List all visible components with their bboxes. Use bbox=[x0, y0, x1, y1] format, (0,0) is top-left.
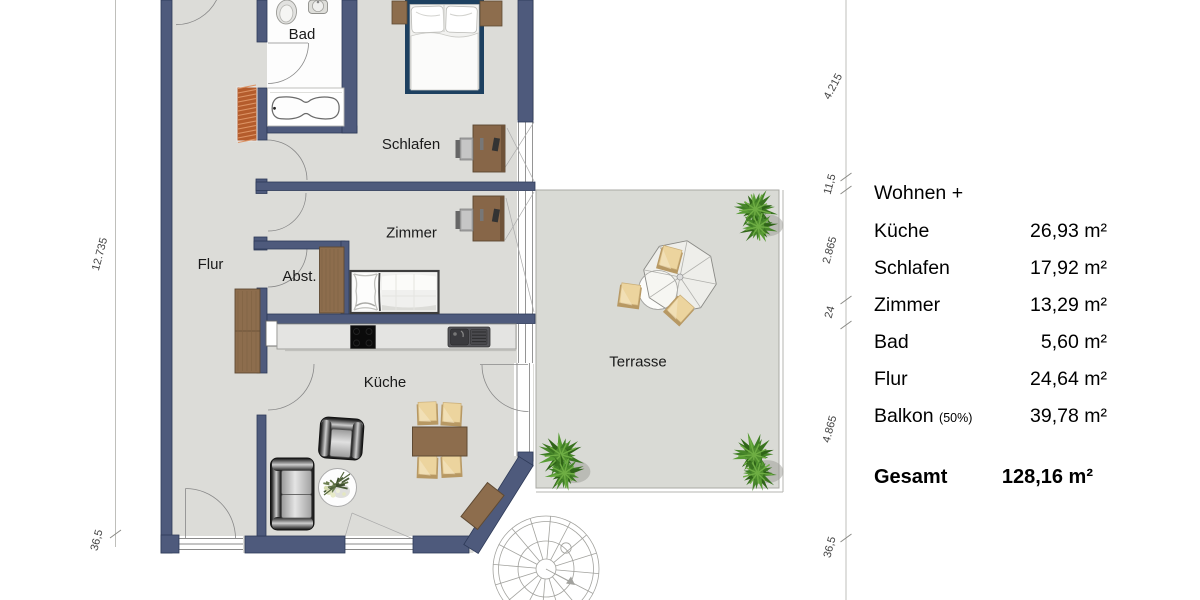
svg-text:Gesamt: Gesamt bbox=[874, 466, 948, 488]
svg-text:Wohnen +: Wohnen + bbox=[874, 182, 963, 204]
svg-text:Zimmer: Zimmer bbox=[386, 225, 437, 242]
svg-text:5,60 m²: 5,60 m² bbox=[1041, 331, 1108, 353]
svg-text:24,64 m²: 24,64 m² bbox=[1030, 368, 1107, 390]
svg-text:Zimmer: Zimmer bbox=[874, 294, 941, 316]
svg-text:Flur: Flur bbox=[874, 368, 908, 390]
svg-text:17,92 m²: 17,92 m² bbox=[1030, 257, 1107, 279]
svg-text:26,93 m²: 26,93 m² bbox=[1030, 220, 1107, 242]
svg-text:Bad: Bad bbox=[874, 331, 909, 353]
svg-text:Küche: Küche bbox=[364, 374, 407, 391]
svg-text:13,29 m²: 13,29 m² bbox=[1030, 294, 1107, 316]
svg-text:Flur: Flur bbox=[198, 256, 224, 273]
svg-text:39,78 m²: 39,78 m² bbox=[1030, 405, 1107, 427]
svg-text:Abst.: Abst. bbox=[282, 268, 316, 285]
svg-text:Schlafen: Schlafen bbox=[382, 136, 440, 153]
svg-text:Küche: Küche bbox=[874, 220, 929, 242]
svg-text:128,16 m²: 128,16 m² bbox=[1002, 466, 1094, 488]
svg-text:Bad: Bad bbox=[289, 26, 316, 43]
svg-text:Schlafen: Schlafen bbox=[874, 257, 950, 279]
svg-text:Terrasse: Terrasse bbox=[609, 354, 667, 371]
